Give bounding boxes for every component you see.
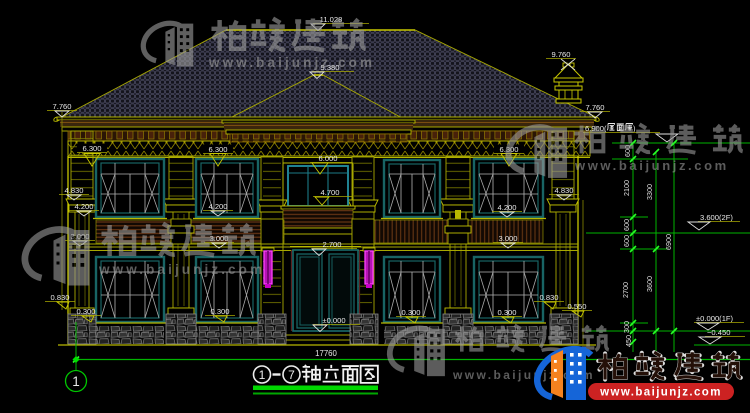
svg-text:0.300: 0.300 <box>497 308 516 317</box>
svg-text:7: 7 <box>288 368 295 382</box>
svg-text:7.760: 7.760 <box>585 103 604 112</box>
svg-text:4.200: 4.200 <box>208 202 227 211</box>
svg-text:±0.000(1F): ±0.000(1F) <box>696 314 734 323</box>
svg-text:0.830: 0.830 <box>539 293 558 302</box>
svg-text:www.baijunjz.com: www.baijunjz.com <box>599 387 722 399</box>
svg-text:6.000: 6.000 <box>318 154 337 163</box>
svg-text:17760: 17760 <box>315 349 337 358</box>
svg-text:3.000: 3.000 <box>498 234 517 243</box>
svg-text:4.830: 4.830 <box>554 186 573 195</box>
svg-text:6900: 6900 <box>664 234 673 250</box>
svg-text:6.300: 6.300 <box>82 144 101 153</box>
svg-text:600: 600 <box>622 219 631 231</box>
svg-text:300: 300 <box>622 321 631 333</box>
svg-text:4.200: 4.200 <box>74 202 93 211</box>
svg-text:www.baijunjz.com: www.baijunjz.com <box>574 158 729 173</box>
svg-text:4.200: 4.200 <box>497 203 516 212</box>
svg-text:4.700: 4.700 <box>320 188 339 197</box>
svg-text:0.300: 0.300 <box>401 308 420 317</box>
svg-text:600: 600 <box>622 235 631 247</box>
svg-text:0.300: 0.300 <box>76 307 95 316</box>
svg-text:2.700: 2.700 <box>322 240 341 249</box>
svg-text:3.600(2F): 3.600(2F) <box>700 213 733 222</box>
svg-text:3600: 3600 <box>645 276 654 292</box>
svg-text:−0.450: −0.450 <box>707 328 730 337</box>
svg-text:1: 1 <box>72 374 80 389</box>
svg-text:www.baijunjz.com: www.baijunjz.com <box>208 55 375 70</box>
svg-text:6.300: 6.300 <box>208 145 227 154</box>
svg-text:450: 450 <box>624 335 633 347</box>
svg-text:2700: 2700 <box>621 282 630 298</box>
svg-text:3300: 3300 <box>645 184 654 200</box>
svg-text:1: 1 <box>259 368 266 382</box>
svg-text:4.830: 4.830 <box>64 186 83 195</box>
svg-text:0.550: 0.550 <box>567 302 586 311</box>
svg-text:www.baijunjz.com: www.baijunjz.com <box>98 262 265 277</box>
svg-text:0.830: 0.830 <box>50 293 69 302</box>
svg-text:9.760: 9.760 <box>551 50 570 59</box>
svg-text:2100: 2100 <box>622 180 631 196</box>
svg-text:7.760: 7.760 <box>52 102 71 111</box>
svg-text:±0.000: ±0.000 <box>322 316 345 325</box>
svg-text:0.300: 0.300 <box>210 307 229 316</box>
